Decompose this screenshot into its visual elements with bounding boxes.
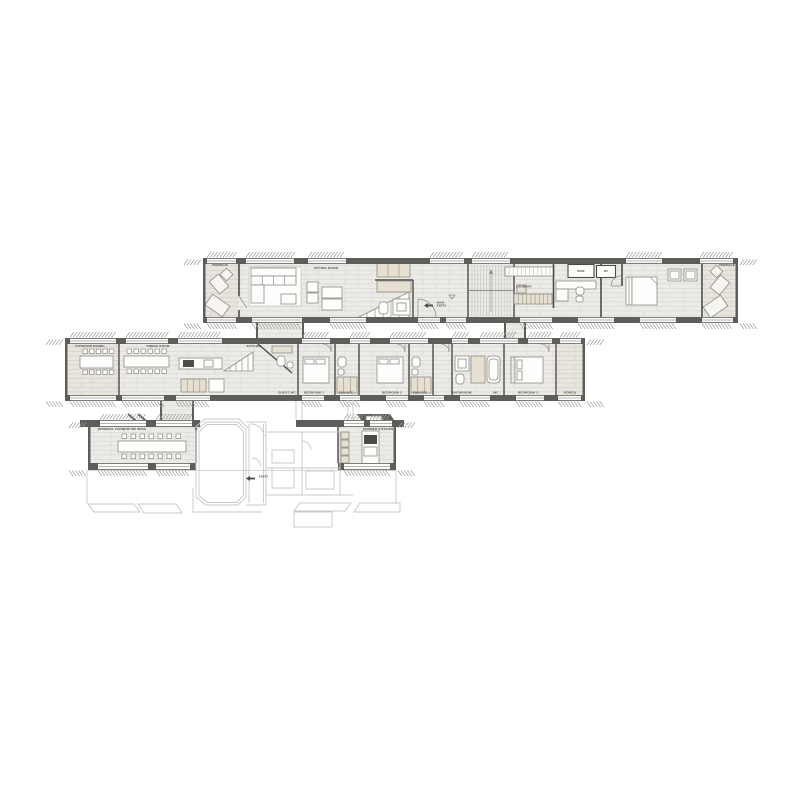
hatch-ticks bbox=[700, 252, 733, 258]
hatch-ticks bbox=[156, 471, 189, 477]
vanity bbox=[377, 281, 411, 292]
corridor-walls bbox=[249, 424, 264, 503]
vanity bbox=[272, 346, 292, 353]
hatch-ticks bbox=[207, 324, 237, 330]
hatch-ticks bbox=[184, 259, 201, 265]
hatch-ticks bbox=[472, 252, 508, 258]
chairs bbox=[148, 369, 152, 373]
hatch-ticks bbox=[446, 324, 466, 330]
bed bbox=[515, 357, 543, 383]
room-features bbox=[272, 450, 334, 489]
cabinet bbox=[377, 263, 410, 277]
hatch-ticks bbox=[424, 402, 444, 408]
chairs bbox=[140, 454, 145, 459]
shelf bbox=[341, 448, 349, 455]
wc bbox=[338, 357, 346, 367]
hatch-ticks bbox=[430, 252, 463, 258]
room-label: ORIGINAL FARMHOUSE WING bbox=[98, 427, 147, 431]
basin bbox=[287, 362, 293, 368]
chairs bbox=[149, 434, 154, 439]
site-edge bbox=[193, 488, 262, 512]
hatch-ticks bbox=[390, 332, 426, 338]
hatch-ticks bbox=[178, 332, 220, 338]
hatch-ticks bbox=[70, 332, 116, 338]
arrow-label: ENTRY bbox=[437, 304, 447, 308]
hatch-ticks bbox=[302, 402, 322, 408]
end-wall bbox=[203, 258, 206, 323]
site-step bbox=[138, 504, 182, 513]
site-step bbox=[294, 512, 332, 527]
side-table bbox=[307, 293, 318, 303]
hatch-ticks bbox=[308, 252, 344, 258]
bench bbox=[514, 294, 552, 304]
chairs bbox=[90, 370, 94, 374]
end-wall bbox=[394, 420, 397, 470]
floor-plan-canvas: TERRACESITTING ROOMLAUNDRYROBEWCMASTER B… bbox=[0, 0, 800, 800]
sofa-back bbox=[251, 268, 296, 276]
hatch-ticks bbox=[330, 324, 366, 330]
coffee-table bbox=[281, 294, 296, 304]
hatch-ticks bbox=[640, 324, 676, 330]
hatch-ticks bbox=[516, 402, 542, 408]
chairs bbox=[176, 454, 181, 459]
room-label: ROBE bbox=[577, 270, 585, 273]
vanity bbox=[471, 356, 485, 383]
hatch-ticks bbox=[340, 402, 360, 408]
room-label: MASTER BEDROOM bbox=[626, 260, 658, 264]
room-label: TERRACE bbox=[212, 263, 228, 267]
hatch-ticks bbox=[418, 324, 438, 330]
cottage-outline bbox=[196, 422, 246, 505]
hatch-ticks bbox=[302, 332, 328, 338]
dining-table bbox=[124, 356, 169, 367]
chairs bbox=[158, 454, 163, 459]
games-table bbox=[118, 441, 186, 452]
arrow-bar bbox=[428, 305, 433, 307]
wc bbox=[412, 357, 420, 367]
chairs bbox=[167, 454, 172, 459]
chairs bbox=[140, 434, 145, 439]
chairs bbox=[131, 454, 136, 459]
bed bbox=[632, 277, 657, 305]
chairs bbox=[141, 369, 145, 373]
room-label: BEDROOM 3 bbox=[518, 391, 538, 395]
deck bbox=[558, 344, 583, 395]
chairs bbox=[176, 434, 181, 439]
floor-plan-page: TERRACESITTING ROOMLAUNDRYROBEWCMASTER B… bbox=[0, 0, 800, 800]
end-wall bbox=[88, 420, 91, 470]
room-label: GUEST WC bbox=[278, 391, 296, 395]
room-label: PORCH bbox=[564, 391, 577, 395]
bench bbox=[556, 289, 568, 301]
wc bbox=[277, 356, 285, 366]
hatch-ticks bbox=[246, 252, 295, 258]
stove bbox=[364, 435, 377, 444]
wc bbox=[576, 287, 584, 295]
shower bbox=[455, 356, 469, 371]
wall-stub bbox=[80, 420, 88, 427]
hatch-ticks bbox=[558, 402, 581, 408]
pavilion-layer bbox=[46, 252, 757, 476]
shelf bbox=[341, 432, 349, 439]
chairs bbox=[127, 349, 131, 353]
side-table bbox=[307, 282, 318, 292]
hatch-ticks bbox=[69, 471, 86, 477]
hatch-ticks bbox=[560, 332, 580, 338]
hatch-ticks bbox=[626, 252, 662, 258]
door-arc bbox=[302, 441, 311, 450]
chairs bbox=[90, 349, 94, 353]
hatch-ticks bbox=[126, 332, 168, 338]
room-label: OUTDOOR DINING bbox=[75, 344, 105, 348]
room-label: WC bbox=[604, 270, 608, 273]
hatch-ticks bbox=[702, 324, 732, 330]
end-wall bbox=[736, 258, 739, 323]
bench bbox=[556, 281, 596, 289]
chairs bbox=[83, 370, 87, 374]
chairs bbox=[109, 349, 113, 353]
site-step bbox=[354, 503, 400, 512]
chaise bbox=[251, 285, 264, 303]
chairs bbox=[155, 349, 159, 353]
chairs bbox=[134, 369, 138, 373]
chairs bbox=[148, 349, 152, 353]
farmhouse-wing bbox=[69, 414, 415, 476]
link-floor bbox=[504, 322, 526, 340]
site-step bbox=[294, 503, 351, 511]
shower bbox=[393, 299, 410, 315]
chairs bbox=[134, 349, 138, 353]
link-floor bbox=[256, 322, 304, 340]
hatch-ticks bbox=[100, 414, 146, 420]
end-wall bbox=[583, 338, 586, 401]
room-label: BEDROOM 1 bbox=[304, 391, 324, 395]
arrow-head bbox=[246, 476, 250, 481]
upper-pavilion bbox=[184, 252, 757, 329]
cottage-inner-wall bbox=[199, 425, 244, 503]
chairs bbox=[155, 369, 159, 373]
hatch-ticks bbox=[587, 402, 604, 408]
hatch-ticks bbox=[578, 324, 614, 330]
hatch-ticks bbox=[452, 332, 469, 338]
chairs bbox=[122, 454, 127, 459]
arrow-bar bbox=[250, 478, 255, 480]
basin bbox=[412, 369, 418, 375]
hatch-ticks bbox=[528, 332, 551, 338]
room-label: ENSUITE bbox=[339, 391, 353, 395]
hatch-ticks bbox=[740, 259, 757, 265]
arrow-label: MAIN bbox=[437, 300, 444, 304]
chairs bbox=[96, 349, 100, 353]
room-label: SUMMER KITCHEN bbox=[363, 427, 394, 431]
hatch-ticks bbox=[740, 324, 757, 330]
room-label: TERRACE bbox=[719, 263, 735, 267]
bedroom-pavilion bbox=[46, 332, 604, 407]
site-step bbox=[88, 504, 140, 512]
chairs bbox=[162, 349, 166, 353]
chairs bbox=[103, 370, 107, 374]
room-label: KITCHEN bbox=[247, 344, 262, 348]
chairs bbox=[167, 434, 172, 439]
wc bbox=[456, 374, 464, 384]
shelf bbox=[341, 440, 349, 447]
chairs bbox=[103, 349, 107, 353]
basin bbox=[338, 369, 344, 375]
chairs bbox=[162, 369, 166, 373]
hatch-ticks bbox=[184, 324, 201, 330]
link-stair bbox=[504, 322, 526, 340]
door-arc bbox=[251, 424, 264, 437]
end-wall bbox=[65, 338, 68, 401]
bench bbox=[322, 287, 342, 298]
chairs bbox=[83, 349, 87, 353]
arrow-label: ENTRY bbox=[259, 475, 269, 479]
hatch-ticks bbox=[98, 471, 147, 477]
door-arc bbox=[252, 458, 261, 467]
hatch-ticks bbox=[122, 402, 164, 408]
cottage-ghost-layer bbox=[193, 400, 353, 505]
chairs bbox=[149, 454, 154, 459]
room-label: LAUNDRY bbox=[516, 285, 533, 289]
chairs bbox=[127, 369, 131, 373]
ghost-link bbox=[296, 401, 302, 420]
hatch-ticks bbox=[398, 471, 415, 477]
hatch-ticks bbox=[587, 339, 604, 345]
hatch-ticks bbox=[344, 471, 390, 477]
wc bbox=[379, 302, 388, 314]
outdoor-table bbox=[80, 356, 113, 368]
shelf bbox=[341, 456, 349, 463]
hatch-ticks bbox=[46, 402, 63, 408]
chairs bbox=[96, 370, 100, 374]
basin bbox=[576, 296, 583, 302]
room-label: DINING ROOM bbox=[147, 344, 170, 348]
hatch-ticks bbox=[70, 402, 116, 408]
room-label: ENSUITE bbox=[413, 391, 427, 395]
hatch-ticks bbox=[386, 402, 406, 408]
chairs bbox=[109, 370, 113, 374]
hatch-ticks bbox=[207, 252, 237, 258]
cooktop bbox=[183, 360, 194, 367]
chairs bbox=[141, 349, 145, 353]
hatch-ticks bbox=[46, 339, 63, 345]
chairs bbox=[122, 434, 127, 439]
cabinet bbox=[209, 379, 224, 392]
chairs bbox=[158, 434, 163, 439]
bench bbox=[322, 299, 342, 310]
link-living-dining bbox=[256, 322, 304, 340]
hatch-ticks bbox=[460, 402, 490, 408]
room-label: WC bbox=[493, 391, 499, 395]
room-label: BATHROOM bbox=[452, 391, 471, 395]
hatch-ticks bbox=[350, 332, 370, 338]
chairs bbox=[131, 434, 136, 439]
room-label: SITTING ROOM bbox=[314, 266, 339, 270]
room-label: BEDROOM 2 bbox=[382, 391, 402, 395]
